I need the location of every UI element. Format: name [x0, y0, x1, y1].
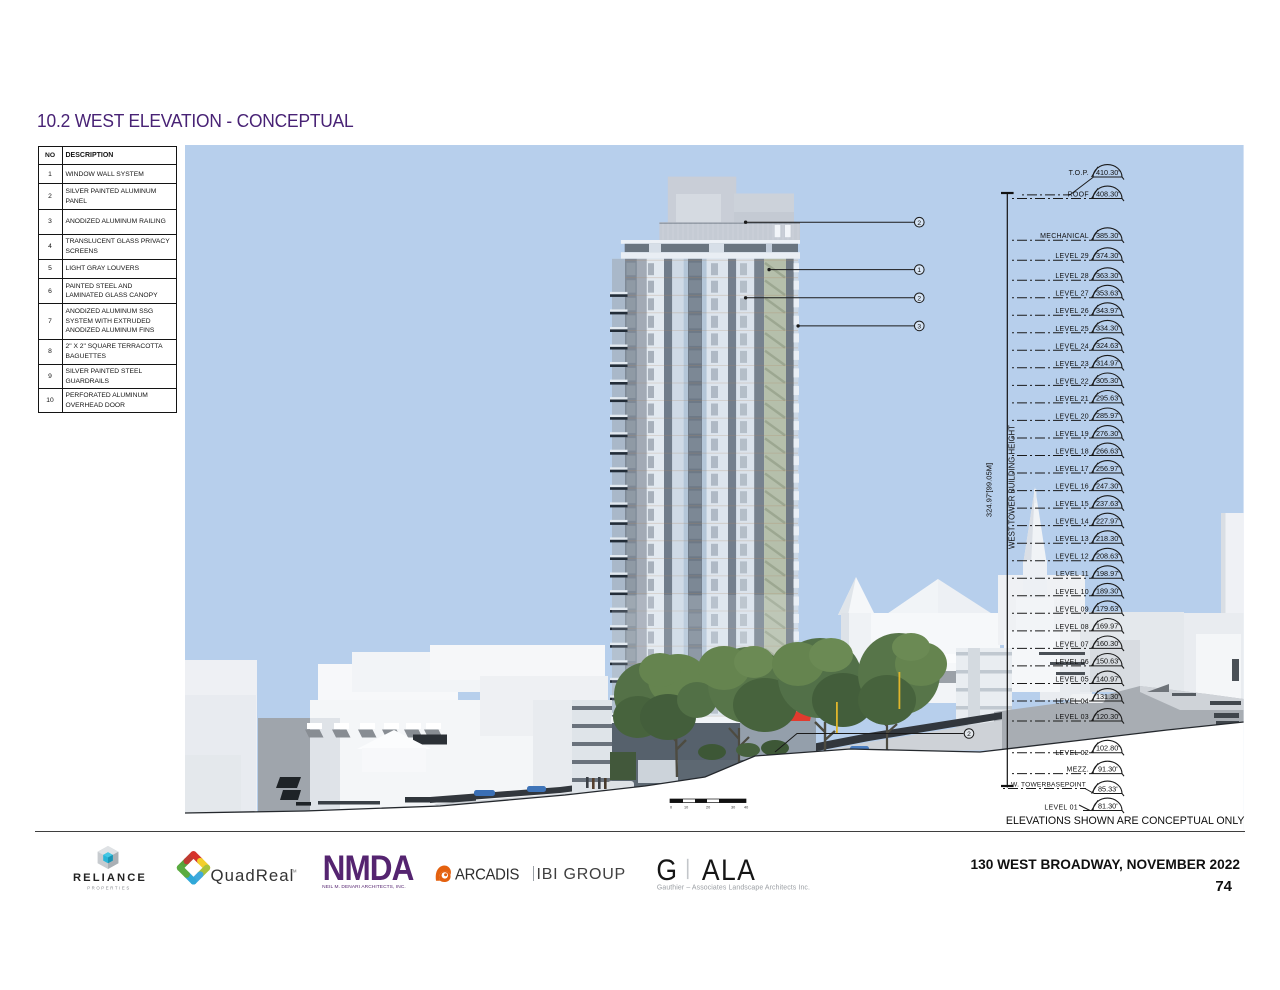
- svg-text:RELIANCE: RELIANCE: [73, 872, 147, 884]
- svg-text:295.63': 295.63': [1096, 394, 1120, 403]
- svg-text:334.30': 334.30': [1096, 324, 1120, 333]
- svg-text:WEST TOWER BUILDING HEIGHT: WEST TOWER BUILDING HEIGHT: [1008, 425, 1017, 549]
- svg-text:410.30': 410.30': [1096, 168, 1120, 177]
- svg-text:Gauthier – Associates Landscap: Gauthier – Associates Landscape Architec…: [657, 885, 810, 892]
- svg-text:LEVEL 05: LEVEL 05: [1055, 677, 1089, 684]
- svg-text:81.30': 81.30': [1098, 801, 1118, 810]
- svg-text:LEVEL 21: LEVEL 21: [1055, 396, 1089, 403]
- svg-text:385.30': 385.30': [1096, 231, 1120, 240]
- svg-text:LEVEL 26: LEVEL 26: [1055, 308, 1089, 315]
- svg-text:QuadReal: QuadReal: [211, 866, 295, 885]
- svg-text:LEVEL 19: LEVEL 19: [1055, 431, 1089, 438]
- svg-text:LEVEL 29: LEVEL 29: [1055, 253, 1089, 260]
- svg-text:LEVEL 13: LEVEL 13: [1055, 536, 1089, 543]
- svg-text:10: 10: [684, 806, 688, 810]
- svg-text:MECHANICAL: MECHANICAL: [1040, 233, 1089, 240]
- svg-text:LEVEL 18: LEVEL 18: [1055, 449, 1089, 456]
- svg-text:LEVEL 07: LEVEL 07: [1055, 641, 1089, 648]
- svg-text:247.30': 247.30': [1096, 481, 1120, 490]
- svg-text:227.97': 227.97': [1096, 516, 1120, 525]
- svg-text:2: 2: [917, 220, 921, 227]
- svg-text:LEVEL 23: LEVEL 23: [1055, 361, 1089, 368]
- svg-text:1: 1: [917, 267, 921, 274]
- svg-text:2: 2: [967, 731, 971, 738]
- svg-text:LEVEL 06: LEVEL 06: [1055, 659, 1089, 666]
- svg-text:353.63': 353.63': [1096, 289, 1120, 298]
- svg-text:91.30': 91.30': [1098, 764, 1118, 773]
- svg-text:ALA: ALA: [702, 854, 756, 887]
- svg-text:285.97': 285.97': [1096, 411, 1120, 420]
- svg-text:85.33': 85.33': [1098, 784, 1118, 793]
- svg-text:LEVEL 28: LEVEL 28: [1055, 273, 1089, 280]
- svg-text:140.97': 140.97': [1096, 674, 1120, 683]
- svg-text:374.30': 374.30': [1096, 251, 1120, 260]
- svg-text:LEVEL 15: LEVEL 15: [1055, 501, 1089, 508]
- svg-text:237.63': 237.63': [1096, 499, 1120, 508]
- svg-text:324.97'[99.05M]: 324.97'[99.05M]: [985, 463, 994, 517]
- svg-text:218.30': 218.30': [1096, 534, 1120, 543]
- svg-text:150.63': 150.63': [1096, 657, 1120, 666]
- svg-text:LEVEL 25: LEVEL 25: [1055, 326, 1089, 333]
- svg-text:LEVEL 10: LEVEL 10: [1055, 589, 1089, 596]
- svg-text:324.63': 324.63': [1096, 341, 1120, 350]
- svg-text:LEVEL 11: LEVEL 11: [1056, 571, 1089, 578]
- svg-text:305.30': 305.30': [1096, 376, 1120, 385]
- svg-text:0: 0: [670, 806, 672, 810]
- svg-text:ARCADIS: ARCADIS: [455, 866, 519, 884]
- svg-text:ROOF: ROOF: [1068, 192, 1089, 199]
- svg-text:W. TOWERBASEPOINT: W. TOWERBASEPOINT: [1011, 781, 1086, 788]
- svg-text:LEVEL 04: LEVEL 04: [1055, 698, 1089, 705]
- svg-text:LEVEL 01: LEVEL 01: [1044, 805, 1078, 812]
- svg-text:LEVEL 20: LEVEL 20: [1055, 413, 1089, 420]
- svg-text:20: 20: [706, 806, 710, 810]
- svg-text:LEVEL 12: LEVEL 12: [1055, 554, 1089, 561]
- svg-text:120.30': 120.30': [1096, 712, 1120, 721]
- svg-text:131.30': 131.30': [1096, 692, 1120, 701]
- svg-text:30: 30: [731, 806, 735, 810]
- svg-text:MEZZ.: MEZZ.: [1067, 767, 1090, 774]
- svg-text:40: 40: [744, 806, 748, 810]
- svg-text:LEVEL 24: LEVEL 24: [1055, 343, 1089, 350]
- svg-text:LEVEL 08: LEVEL 08: [1055, 624, 1089, 631]
- svg-text:TM: TM: [291, 869, 298, 874]
- svg-text:LEVEL 09: LEVEL 09: [1055, 606, 1089, 613]
- svg-text:T.O.P.: T.O.P.: [1069, 170, 1089, 177]
- svg-text:208.63': 208.63': [1096, 552, 1120, 561]
- svg-text:314.97': 314.97': [1096, 359, 1120, 368]
- svg-text:189.30': 189.30': [1096, 587, 1120, 596]
- svg-text:363.30': 363.30': [1096, 271, 1120, 280]
- svg-text:LEVEL 03: LEVEL 03: [1055, 714, 1089, 721]
- svg-text:256.97': 256.97': [1096, 464, 1120, 473]
- svg-text:276.30': 276.30': [1096, 429, 1120, 438]
- svg-text:LEVEL 27: LEVEL 27: [1055, 291, 1089, 298]
- svg-text:LEVEL 17: LEVEL 17: [1055, 466, 1089, 473]
- svg-text:266.63': 266.63': [1096, 446, 1120, 455]
- svg-text:2: 2: [917, 295, 921, 302]
- svg-text:179.63': 179.63': [1096, 604, 1120, 613]
- svg-text:198.97': 198.97': [1096, 569, 1120, 578]
- svg-text:408.30': 408.30': [1096, 189, 1120, 198]
- svg-text:LEVEL 14: LEVEL 14: [1055, 519, 1089, 526]
- svg-text:PROPERTIES: PROPERTIES: [87, 886, 131, 891]
- svg-text:169.97': 169.97': [1096, 622, 1120, 631]
- svg-text:G: G: [656, 854, 677, 887]
- svg-text:LEVEL 16: LEVEL 16: [1055, 484, 1089, 491]
- svg-text:LEVEL 02: LEVEL 02: [1055, 750, 1089, 757]
- svg-text:102.80': 102.80': [1096, 744, 1120, 753]
- svg-text:343.97': 343.97': [1096, 306, 1120, 315]
- svg-text:LEVEL 22: LEVEL 22: [1055, 378, 1089, 385]
- svg-text:160.30': 160.30': [1096, 639, 1120, 648]
- svg-text:3: 3: [917, 324, 921, 331]
